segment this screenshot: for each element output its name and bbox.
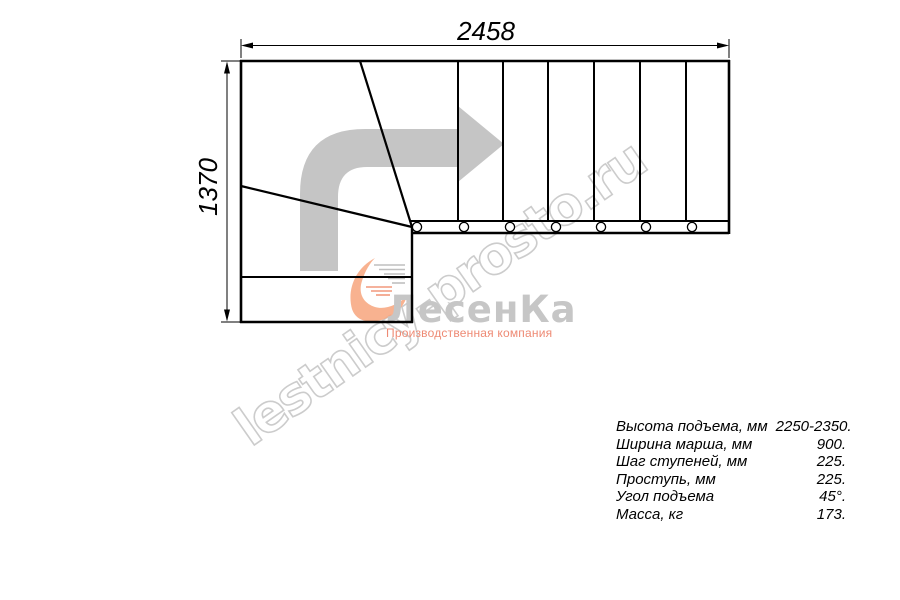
spec-label: Шаг ступеней, мм	[616, 453, 747, 471]
baluster-circle	[551, 222, 560, 231]
baluster-circle	[687, 222, 696, 231]
spec-row: Шаг ступеней, мм 225.	[616, 453, 846, 471]
logo-title: ЛесенКа	[386, 288, 577, 331]
spec-row: Угол подъема 45°.	[616, 488, 846, 506]
baluster-circle	[459, 222, 468, 231]
spec-label: Угол подъема	[616, 488, 714, 506]
left-dimension-label: 1370	[193, 158, 223, 216]
dimension-arrow-down-icon	[224, 310, 230, 322]
baluster-circle	[412, 222, 421, 231]
baluster-circle	[641, 222, 650, 231]
spec-row: Ширина марша, мм 900.	[616, 436, 846, 454]
spec-label: Масса, кг	[616, 506, 683, 524]
top-dimension: 2458	[241, 16, 729, 58]
staircase-plan-drawing: lestnicy-prosto.ru ЛесенКа Производствен…	[0, 0, 900, 600]
spec-row: Высота подъема, мм 2250-2350.	[616, 418, 846, 436]
spec-row: Масса, кг 173.	[616, 506, 846, 524]
spec-value: 2250-2350.	[776, 418, 852, 436]
logo-subtitle: Производственная компания	[386, 326, 552, 340]
dimension-arrow-left-icon	[241, 43, 253, 49]
spec-label: Проступь, мм	[616, 471, 716, 489]
spec-value: 173.	[817, 506, 846, 524]
spec-label: Ширина марша, мм	[616, 436, 752, 454]
left-dimension: 1370	[193, 61, 240, 322]
spec-value: 225.	[817, 453, 846, 471]
logo-speed-lines-icon	[374, 265, 405, 283]
spec-value: 900.	[817, 436, 846, 454]
baluster-circles	[412, 222, 696, 231]
baluster-circle	[505, 222, 514, 231]
spec-label: Высота подъема, мм	[616, 418, 768, 436]
spec-row: Проступь, мм 225.	[616, 471, 846, 489]
dimension-arrow-up-icon	[224, 62, 230, 74]
spec-value: 45°.	[819, 488, 846, 506]
spec-table: Высота подъема, мм 2250-2350. Ширина мар…	[616, 418, 846, 524]
dimension-arrow-right-icon	[717, 43, 729, 49]
baluster-circle	[596, 222, 605, 231]
top-dimension-label: 2458	[456, 16, 515, 46]
spec-value: 225.	[817, 471, 846, 489]
